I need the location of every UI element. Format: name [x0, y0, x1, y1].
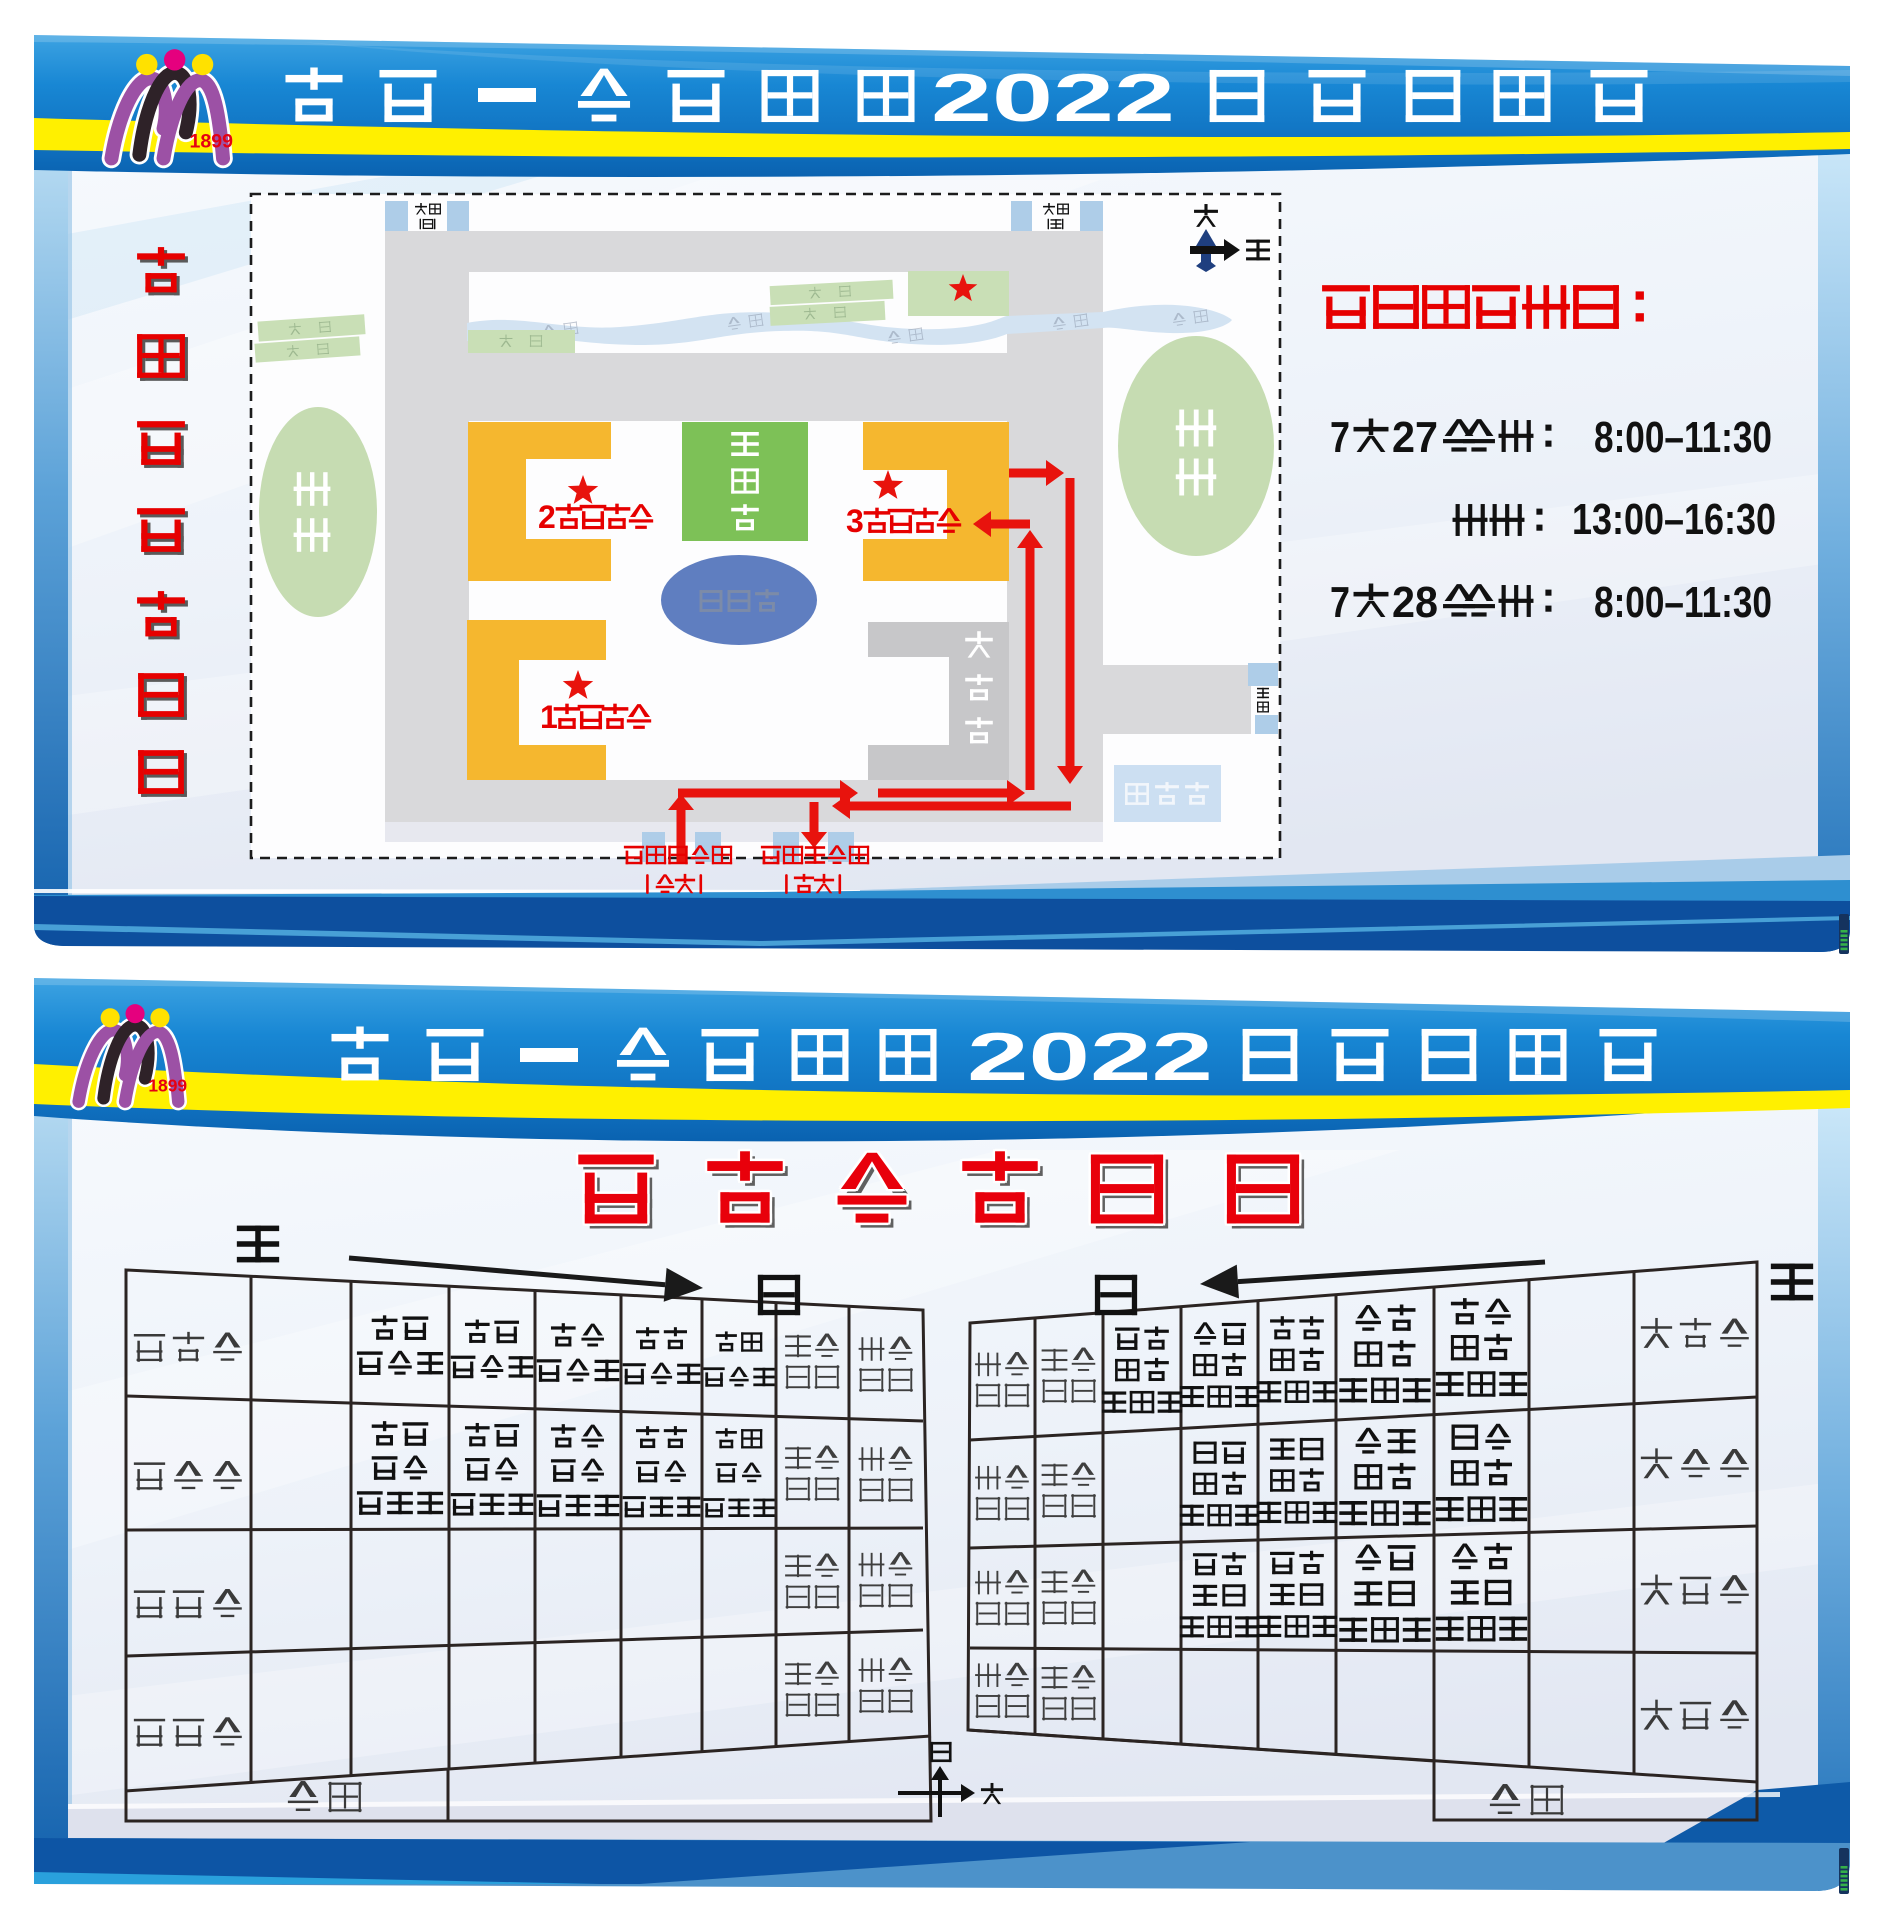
svg-text:2: 2: [538, 499, 556, 535]
svg-text:8:00–11:30: 8:00–11:30: [1594, 413, 1772, 462]
svg-text:27: 27: [1392, 413, 1438, 462]
svg-text:2022: 2022: [967, 1019, 1213, 1095]
svg-text:2022: 2022: [931, 60, 1175, 136]
svg-text:1: 1: [540, 699, 558, 735]
svg-text:8:00–11:30: 8:00–11:30: [1594, 578, 1772, 627]
svg-text:7: 7: [1330, 413, 1350, 462]
svg-text:1899: 1899: [148, 1076, 187, 1096]
svg-text:3: 3: [846, 503, 864, 539]
svg-text:13:00–16:30: 13:00–16:30: [1572, 495, 1776, 544]
svg-text:28: 28: [1392, 578, 1438, 627]
svg-text:1899: 1899: [190, 130, 234, 152]
svg-text:7: 7: [1330, 578, 1350, 627]
